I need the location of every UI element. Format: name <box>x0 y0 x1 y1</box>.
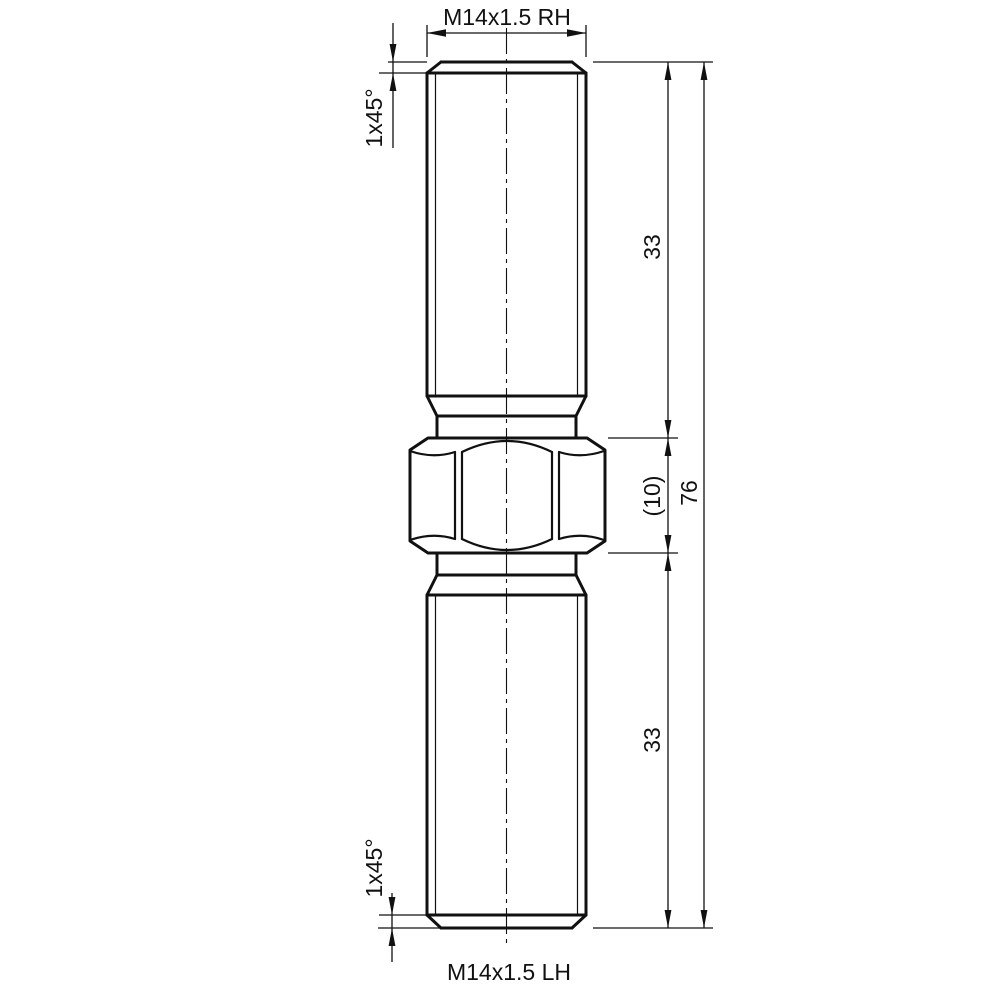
arrowhead-up <box>701 62 708 80</box>
arrowhead-down <box>665 420 672 438</box>
arrowhead-left <box>427 29 446 37</box>
dim-label-length-top: 33 <box>639 234 665 260</box>
dim-chamfer-top: 1x45° <box>361 23 427 148</box>
arrowhead-down <box>665 910 672 928</box>
dim-length-bottom: 33 <box>639 553 671 928</box>
label-thread-bottom: M14x1.5 LH <box>447 959 571 985</box>
dim-label-hex-width: (10) <box>639 476 665 517</box>
dim-label-length-bottom: 33 <box>639 727 665 753</box>
dim-label-length-overall: 76 <box>676 480 702 506</box>
drawing-sheet: M14x1.5 RH 1x45° 33 (10) 33 <box>0 0 1000 1000</box>
technical-drawing-canvas: M14x1.5 RH 1x45° 33 (10) 33 <box>0 0 1000 1000</box>
arrowhead-up <box>665 438 672 456</box>
dim-label-chamfer-top: 1x45° <box>361 88 387 147</box>
dim-chamfer-bottom: 1x45° <box>361 838 441 962</box>
dim-length-overall: 76 <box>676 62 707 928</box>
arrowhead-up <box>389 928 396 946</box>
arrowhead-down <box>390 44 397 62</box>
dim-label-thread-top: M14x1.5 RH <box>443 4 571 30</box>
dim-length-top: 33 <box>639 62 671 438</box>
arrowhead-down <box>389 897 396 915</box>
arrowhead-up <box>390 73 397 91</box>
arrowhead-up <box>665 62 672 80</box>
arrowhead-down <box>701 910 708 928</box>
dim-label-chamfer-bottom: 1x45° <box>361 838 387 897</box>
arrowhead-right <box>567 29 586 37</box>
arrowhead-down <box>665 535 672 553</box>
dim-hex-width: (10) <box>639 438 671 553</box>
arrowhead-up <box>665 553 672 571</box>
